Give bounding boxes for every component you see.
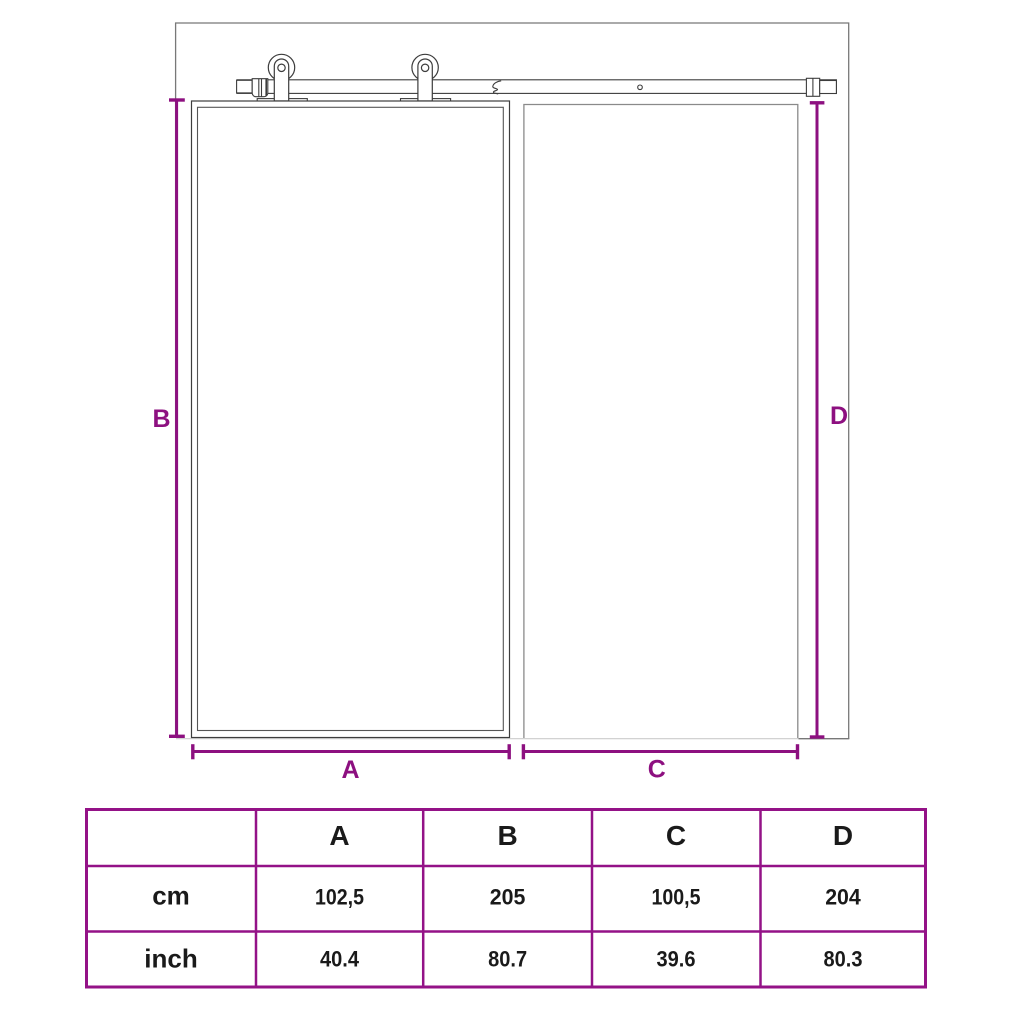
svg-text:205: 205 [490,884,526,909]
svg-text:cm: cm [152,881,190,911]
svg-text:80.7: 80.7 [488,947,527,972]
svg-text:40.4: 40.4 [320,947,360,972]
svg-text:A: A [341,756,359,784]
svg-text:39.6: 39.6 [657,947,696,972]
svg-text:C: C [648,756,666,784]
svg-text:inch: inch [144,944,197,974]
svg-text:C: C [666,820,686,851]
svg-text:80.3: 80.3 [824,947,863,972]
svg-text:D: D [830,402,848,430]
svg-text:B: B [152,405,170,433]
svg-text:B: B [497,820,517,851]
svg-text:102,5: 102,5 [315,884,364,909]
svg-text:D: D [833,820,853,851]
svg-text:204: 204 [825,884,861,909]
svg-text:100,5: 100,5 [652,884,701,909]
svg-text:A: A [329,820,349,851]
